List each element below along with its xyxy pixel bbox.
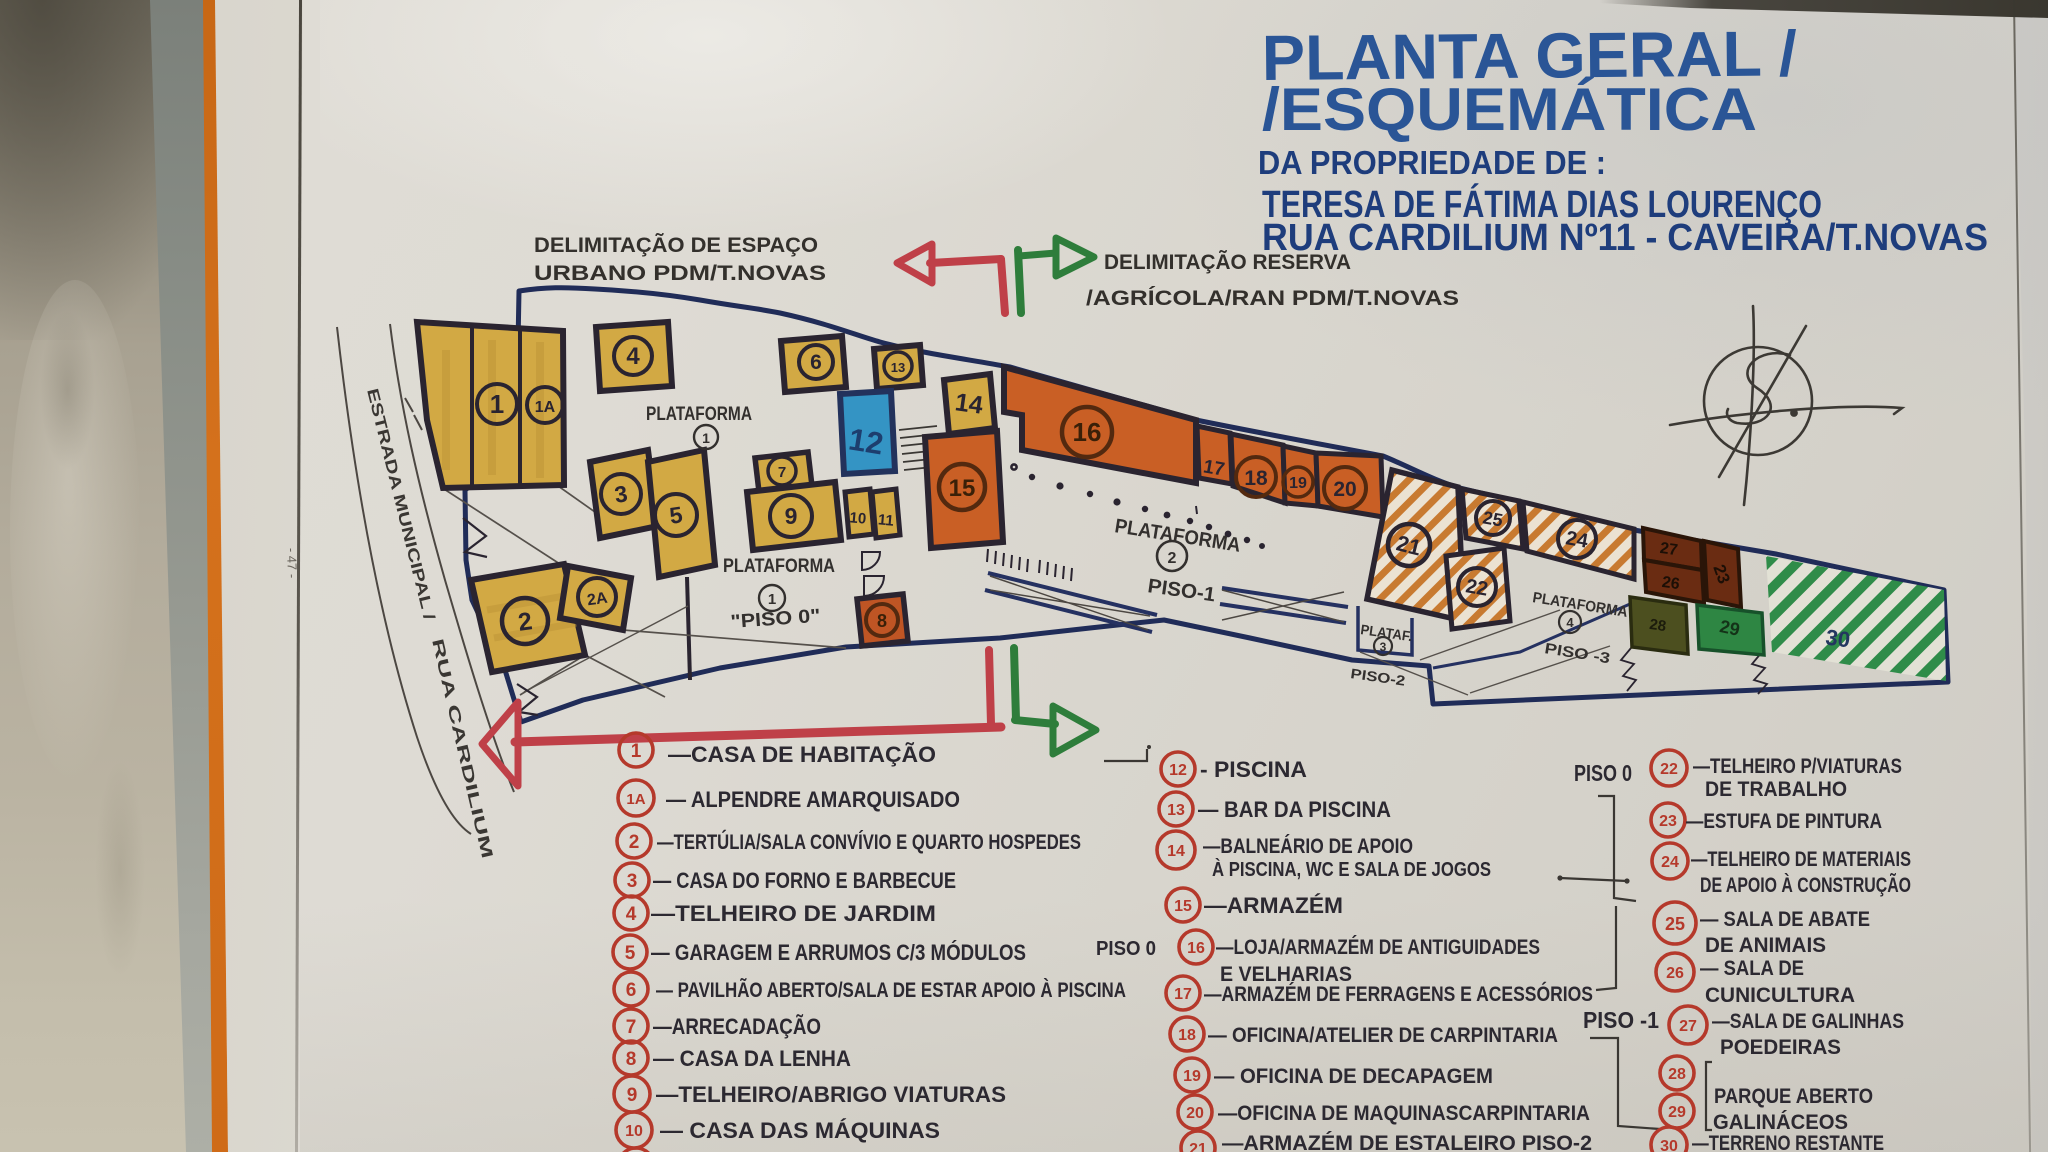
svg-text:27: 27 — [1659, 540, 1679, 559]
svg-text:PLATAFORMA: PLATAFORMA — [723, 556, 835, 577]
svg-text:23: 23 — [1659, 813, 1677, 830]
svg-text:30: 30 — [1660, 1138, 1678, 1152]
svg-text:4: 4 — [626, 343, 640, 370]
svg-text:8: 8 — [626, 1049, 637, 1070]
svg-text:20: 20 — [1333, 478, 1356, 501]
svg-text:1: 1 — [490, 389, 504, 419]
svg-text:5: 5 — [625, 943, 636, 964]
svg-text:12: 12 — [1169, 762, 1187, 779]
svg-text:1A: 1A — [535, 399, 556, 416]
svg-text:—ARRECADAÇÃO: —ARRECADAÇÃO — [653, 1014, 821, 1039]
svg-text:28: 28 — [1668, 1066, 1686, 1083]
svg-text:— SALA DE: — SALA DE — [1700, 957, 1804, 980]
svg-text:— ALPENDRE AMARQUISADO: — ALPENDRE AMARQUISADO — [666, 787, 960, 812]
svg-text:22: 22 — [1660, 761, 1678, 778]
svg-text:—TERRENO RESTANTE: —TERRENO RESTANTE — [1692, 1132, 1884, 1152]
svg-text:URBANO PDM/T.NOVAS: URBANO PDM/T.NOVAS — [534, 262, 826, 285]
svg-text:— SALA DE ABATE: — SALA DE ABATE — [1700, 908, 1870, 931]
svg-text:—TELHEIRO/ABRIGO VIATURAS: —TELHEIRO/ABRIGO VIATURAS — [656, 1082, 1006, 1107]
svg-text:10: 10 — [849, 509, 867, 527]
svg-text:1A: 1A — [626, 791, 645, 808]
svg-text:22: 22 — [1464, 575, 1490, 601]
svg-text:19: 19 — [1289, 475, 1307, 492]
svg-text:PISO -1: PISO -1 — [1583, 1007, 1659, 1033]
svg-text:PISO-1: PISO-1 — [1146, 575, 1216, 606]
svg-text:—ARMAZÉM: —ARMAZÉM — [1204, 893, 1343, 918]
svg-text:/AGRÍCOLA/RAN PDM/T.NOVAS: /AGRÍCOLA/RAN PDM/T.NOVAS — [1086, 287, 1459, 310]
svg-text:—CASA DE HABITAÇÃO: —CASA DE HABITAÇÃO — [668, 742, 936, 767]
svg-text:CUNICULTURA: CUNICULTURA — [1705, 984, 1855, 1007]
svg-text:DELIMITAÇÃO RESERVA: DELIMITAÇÃO RESERVA — [1104, 251, 1351, 274]
svg-text:—ARMAZÉM DE ESTALEIRO PISO-2: —ARMAZÉM DE ESTALEIRO PISO-2 — [1222, 1132, 1592, 1152]
svg-text:—TERTÚLIA/SALA CONVÍVIO E QUAR: —TERTÚLIA/SALA CONVÍVIO E QUARTO HOSPEDE… — [657, 830, 1081, 854]
svg-text:4: 4 — [1566, 615, 1574, 630]
svg-text:— PAVILHÃO ABERTO/SALA DE ESTA: — PAVILHÃO ABERTO/SALA DE ESTAR APOIO À … — [656, 979, 1126, 1002]
svg-text:29: 29 — [1668, 1104, 1686, 1121]
svg-text:PISO 0: PISO 0 — [1096, 938, 1156, 960]
svg-text:— OFICINA/ATELIER DE CARPINTAR: — OFICINA/ATELIER DE CARPINTARIA — [1208, 1024, 1558, 1047]
svg-text:16: 16 — [1073, 417, 1102, 447]
svg-text:— CASA DA LENHA: — CASA DA LENHA — [653, 1046, 851, 1071]
svg-text:—BALNEÁRIO DE APOIO: —BALNEÁRIO DE APOIO — [1203, 835, 1413, 858]
svg-text:18: 18 — [1178, 1027, 1196, 1044]
svg-text:15: 15 — [1174, 898, 1192, 915]
svg-text:—LOJA/ARMAZÉM DE ANTIGUIDADES: —LOJA/ARMAZÉM DE ANTIGUIDADES — [1216, 936, 1540, 959]
svg-text:25: 25 — [1481, 507, 1504, 530]
svg-text:DELIMITAÇÃO DE ESPAÇO: DELIMITAÇÃO DE ESPAÇO — [534, 234, 818, 257]
svg-text:1: 1 — [702, 430, 710, 446]
svg-text:1: 1 — [631, 741, 642, 762]
svg-text:PISO-2: PISO-2 — [1350, 665, 1407, 689]
svg-text:PLATAF.: PLATAF. — [1360, 621, 1414, 644]
svg-text:17: 17 — [1202, 456, 1226, 480]
svg-text:- 47 -: - 47 - — [284, 548, 300, 579]
svg-text:14: 14 — [1167, 843, 1185, 860]
svg-text:À PISCINA, WC E SALA DE JOGOS: À PISCINA, WC E SALA DE JOGOS — [1212, 858, 1491, 881]
svg-text:9: 9 — [785, 503, 798, 529]
svg-text:18: 18 — [1244, 467, 1268, 490]
svg-text:2: 2 — [629, 832, 640, 853]
svg-text:PISO 0: PISO 0 — [1574, 760, 1632, 786]
svg-text:DE APOIO À CONSTRUÇÃO: DE APOIO À CONSTRUÇÃO — [1700, 874, 1911, 897]
svg-text:16: 16 — [1187, 940, 1205, 957]
svg-text:20: 20 — [1186, 1105, 1204, 1122]
svg-text:GALINÁCEOS: GALINÁCEOS — [1713, 1111, 1848, 1134]
svg-text:DE TRABALHO: DE TRABALHO — [1705, 778, 1847, 801]
svg-text:PLATAFORMA: PLATAFORMA — [1113, 515, 1242, 557]
svg-text:26: 26 — [1666, 965, 1684, 982]
svg-text:13: 13 — [1167, 802, 1185, 819]
svg-text:2A: 2A — [586, 590, 609, 610]
svg-text:— CASA DO FORNO E BARBECUE: — CASA DO FORNO E BARBECUE — [653, 868, 956, 893]
svg-text:/ESQUEMÁTICA: /ESQUEMÁTICA — [1262, 76, 1757, 143]
svg-text:—TELHEIRO DE JARDIM: —TELHEIRO DE JARDIM — [651, 901, 936, 926]
svg-text:PARQUE ABERTO: PARQUE ABERTO — [1714, 1085, 1873, 1108]
svg-text:—ARMAZÉM DE FERRAGENS E ACESSÓ: —ARMAZÉM DE FERRAGENS E ACESSÓRIOS — [1204, 982, 1593, 1006]
svg-text:POEDEIRAS: POEDEIRAS — [1720, 1036, 1841, 1059]
svg-text:— BAR DA PISCINA: — BAR DA PISCINA — [1198, 797, 1391, 822]
svg-text:3: 3 — [627, 871, 638, 892]
svg-text:4: 4 — [626, 904, 637, 925]
svg-text:"PISO 0": "PISO 0" — [730, 606, 821, 633]
svg-text:6: 6 — [626, 980, 637, 1001]
svg-text:—ESTUFA DE PINTURA: —ESTUFA DE PINTURA — [1686, 810, 1882, 833]
svg-text:27: 27 — [1679, 1018, 1697, 1035]
svg-text:10: 10 — [625, 1123, 643, 1140]
svg-text:28: 28 — [1648, 616, 1667, 635]
svg-text:7: 7 — [778, 464, 786, 481]
svg-text:— GARAGEM E ARRUMOS C/3 MÓDULO: — GARAGEM E ARRUMOS C/3 MÓDULOS — [651, 940, 1026, 965]
svg-text:PISO -3: PISO -3 — [1543, 640, 1611, 667]
svg-text:—SALA DE GALINHAS: —SALA DE GALINHAS — [1712, 1010, 1904, 1033]
svg-text:9: 9 — [627, 1085, 638, 1106]
svg-text:DE ANIMAIS: DE ANIMAIS — [1705, 934, 1826, 957]
svg-text:13: 13 — [891, 360, 905, 375]
svg-text:15: 15 — [949, 475, 976, 502]
svg-text:PLATAFORMA: PLATAFORMA — [646, 404, 752, 425]
svg-text:26: 26 — [1661, 574, 1681, 593]
svg-text:7: 7 — [626, 1017, 637, 1038]
svg-text:24: 24 — [1661, 854, 1679, 871]
svg-text:14: 14 — [953, 388, 985, 420]
svg-text:—TELHEIRO DE MATERIAIS: —TELHEIRO DE MATERIAIS — [1691, 848, 1911, 871]
svg-text:6: 6 — [810, 351, 822, 374]
svg-text:30: 30 — [1824, 624, 1852, 652]
svg-text:—OFICINA DE MAQUINASCARPINTARI: —OFICINA DE MAQUINASCARPINTARIA — [1218, 1102, 1590, 1125]
svg-text:21: 21 — [1189, 1141, 1207, 1152]
svg-text:3: 3 — [1380, 640, 1387, 654]
svg-text:19: 19 — [1183, 1068, 1201, 1085]
svg-text:8: 8 — [877, 611, 887, 631]
svg-text:12: 12 — [846, 422, 886, 462]
svg-text:— OFICINA DE DECAPAGEM: — OFICINA DE DECAPAGEM — [1214, 1065, 1493, 1088]
svg-text:1: 1 — [768, 591, 776, 608]
svg-text:- PISCINA: - PISCINA — [1200, 757, 1307, 782]
svg-text:2: 2 — [1168, 550, 1177, 567]
svg-text:—TELHEIRO P/VIATURAS: —TELHEIRO P/VIATURAS — [1693, 755, 1902, 778]
svg-text:11: 11 — [877, 511, 894, 529]
svg-text:29: 29 — [1718, 616, 1742, 640]
svg-text:25: 25 — [1665, 914, 1685, 934]
svg-text:DA PROPRIEDADE DE :: DA PROPRIEDADE DE : — [1258, 144, 1606, 181]
svg-text:— CASA DAS MÁQUINAS: — CASA DAS MÁQUINAS — [660, 1118, 940, 1143]
svg-text:RUA CARDILIUM Nº11 - CAVEIRA/T: RUA CARDILIUM Nº11 - CAVEIRA/T.NOVAS — [1262, 217, 1988, 259]
svg-text:17: 17 — [1174, 986, 1192, 1003]
